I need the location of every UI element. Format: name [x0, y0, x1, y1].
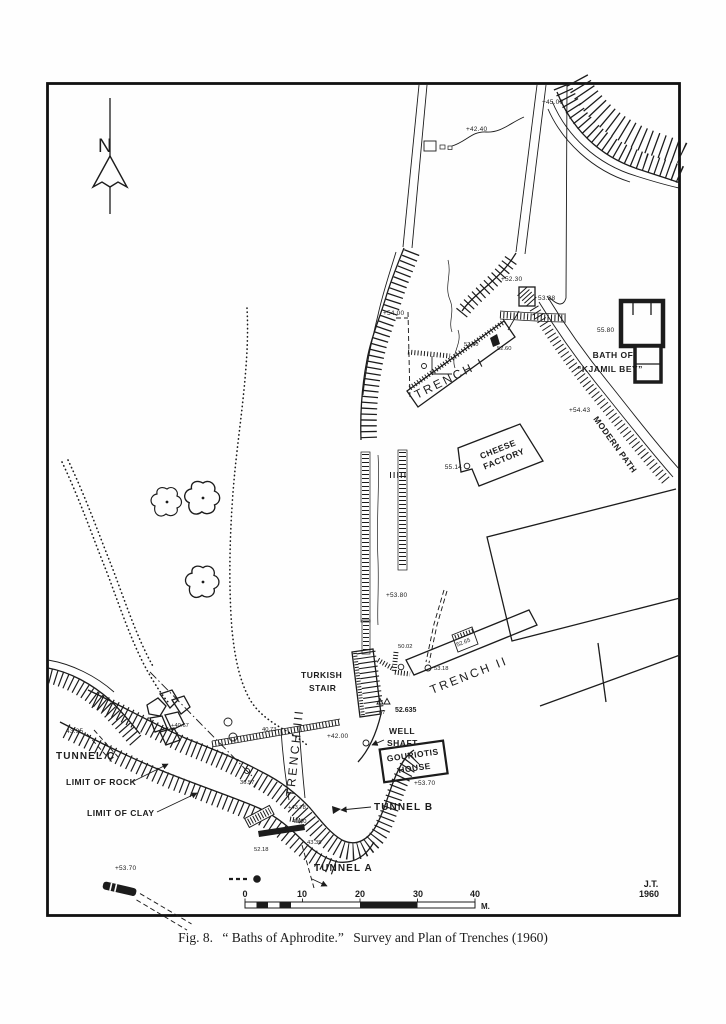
spot-49-00: 49.00 — [292, 819, 307, 825]
spot-55-80: 55.80 — [597, 327, 614, 334]
spot-52-60: 52.60 — [497, 346, 512, 352]
signature-year: 1960 — [639, 889, 659, 899]
caption-title: “ Baths of Aphrodite.” — [222, 930, 343, 945]
caption-number: Fig. 8. — [178, 930, 213, 945]
spot-40-73: 40.73 — [262, 727, 277, 733]
benchmark-value: 52.635 — [395, 707, 417, 714]
spot-40-67: +40.67 — [171, 723, 189, 729]
spot-43-78: +43.78 — [288, 805, 306, 811]
spot-36-57: 36.57 — [240, 780, 255, 786]
spot-53-70-west: +53.70 — [115, 865, 136, 872]
turkish-stair-line1: TURKISH — [301, 670, 342, 680]
figure-caption: Fig. 8. “ Baths of Aphrodite.” Survey an… — [178, 930, 548, 945]
scale-tick-0: 0 — [242, 889, 247, 899]
benchmark-station: 67 — [379, 710, 385, 716]
scale-tick-20: 20 — [355, 889, 365, 899]
north-label: N — [98, 136, 112, 157]
spot-52-00: 52.00 — [464, 342, 479, 348]
spot-45-00: +45.00 — [542, 99, 563, 106]
tunnel-a-label: TUNNEL A — [314, 863, 373, 874]
caption-subtitle: Survey and Plan of Trenches (1960) — [353, 930, 548, 945]
bath-label-line1: BATH OF — [593, 350, 634, 360]
scale-tick-10: 10 — [297, 889, 307, 899]
spot-52-18: 52.18 — [254, 847, 269, 853]
scale-tick-40: 40 — [470, 889, 480, 899]
scale-unit: M. — [481, 902, 490, 911]
spot-42-40: +42.40 — [466, 126, 487, 133]
spot-54-00: +54.00 — [383, 310, 404, 317]
map-frame — [48, 84, 680, 916]
spot-54-43: +54.43 — [569, 407, 590, 414]
spot-52-30: +52.30 — [501, 276, 522, 283]
spot-42-00: +42.00 — [327, 733, 348, 740]
bath-label-line2: “KJAMIL BEY” — [577, 364, 643, 374]
scale-tick-30: 30 — [413, 889, 423, 899]
tunnel-b-label: TUNNEL B — [374, 802, 433, 813]
spot-50-02: 50.02 — [398, 644, 413, 650]
spot-43-35: 43.35 — [307, 840, 322, 846]
turkish-stair-line2: STAIR — [309, 683, 336, 693]
survey-map: N +45.00 +42.40 +52.3 — [0, 0, 726, 1024]
spot-53-80: +53.80 — [386, 592, 407, 599]
figure-plate: N +45.00 +42.40 +52.3 — [0, 0, 726, 1024]
limit-of-rock-label: LIMIT OF ROCK — [66, 777, 137, 787]
spot-43-95: 43.95 — [66, 728, 83, 735]
signature-initials: J.T. — [644, 879, 659, 889]
spot-55-14: 55.14 — [445, 464, 462, 471]
spot-53-70-east: +53.70 — [414, 780, 435, 787]
limit-of-clay-label: LIMIT OF CLAY — [87, 808, 155, 818]
spot-53-28: 53.28 — [538, 295, 555, 302]
well-shaft-line1: WELL — [389, 726, 415, 736]
spot-53-18: 53.18 — [434, 666, 449, 672]
tunnel-c-label: TUNNEL C — [56, 751, 115, 762]
